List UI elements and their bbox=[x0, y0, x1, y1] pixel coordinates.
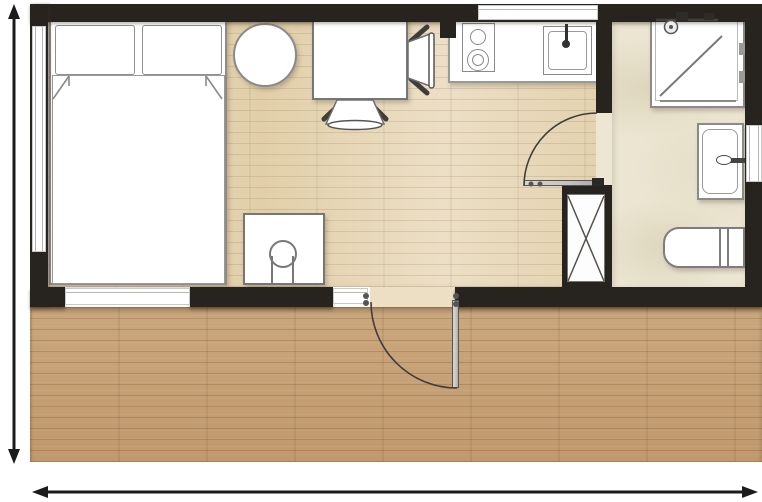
bathroom-door-threshold bbox=[596, 113, 612, 185]
arrowhead-up-icon bbox=[8, 4, 20, 19]
wall-bottom-west bbox=[30, 287, 65, 307]
toilet-cistern-line-2 bbox=[727, 228, 729, 267]
kitchen-window bbox=[478, 5, 598, 20]
sink-faucet bbox=[565, 24, 568, 41]
deck-floor bbox=[30, 307, 762, 462]
wall-bottom-east bbox=[455, 287, 762, 307]
window-south bbox=[65, 288, 190, 305]
arrowhead-down-icon bbox=[8, 449, 20, 464]
stool-leg-right bbox=[292, 256, 294, 285]
partition-wall-upper bbox=[596, 22, 612, 113]
toilet bbox=[663, 227, 745, 268]
arrowhead-left-icon bbox=[32, 486, 48, 498]
window-west bbox=[32, 26, 46, 252]
dining-table bbox=[312, 15, 408, 100]
kitchen-wall-stub bbox=[440, 4, 456, 38]
entrance-threshold bbox=[370, 287, 455, 307]
burner-small bbox=[470, 29, 486, 45]
vertical-dimension-arrow bbox=[8, 4, 20, 464]
floor-plan-canvas bbox=[0, 0, 762, 502]
horizontal-dimension-arrow bbox=[32, 486, 758, 498]
shower-inner bbox=[655, 17, 738, 101]
washbasin-faucet-handle bbox=[716, 155, 732, 165]
pillow-right bbox=[142, 25, 222, 75]
bathroom-window bbox=[746, 125, 762, 182]
entrance-sidelight-window bbox=[333, 288, 368, 304]
bathroom-door-leaf bbox=[524, 180, 596, 186]
round-table bbox=[233, 23, 297, 87]
stool-leg-left bbox=[271, 256, 273, 285]
duvet bbox=[52, 75, 225, 284]
sink-faucet-handle bbox=[562, 40, 570, 48]
toilet-cistern-line-1 bbox=[719, 228, 721, 267]
wall-bottom-center bbox=[190, 287, 333, 307]
pillow-left bbox=[55, 25, 135, 75]
entrance-door-leaf bbox=[452, 300, 459, 388]
wall-top bbox=[30, 4, 762, 22]
service-shaft-box bbox=[567, 194, 605, 282]
shower-drain bbox=[660, 100, 736, 102]
arrowhead-right-icon bbox=[742, 486, 758, 498]
burner-large-inner-ring bbox=[472, 54, 484, 66]
